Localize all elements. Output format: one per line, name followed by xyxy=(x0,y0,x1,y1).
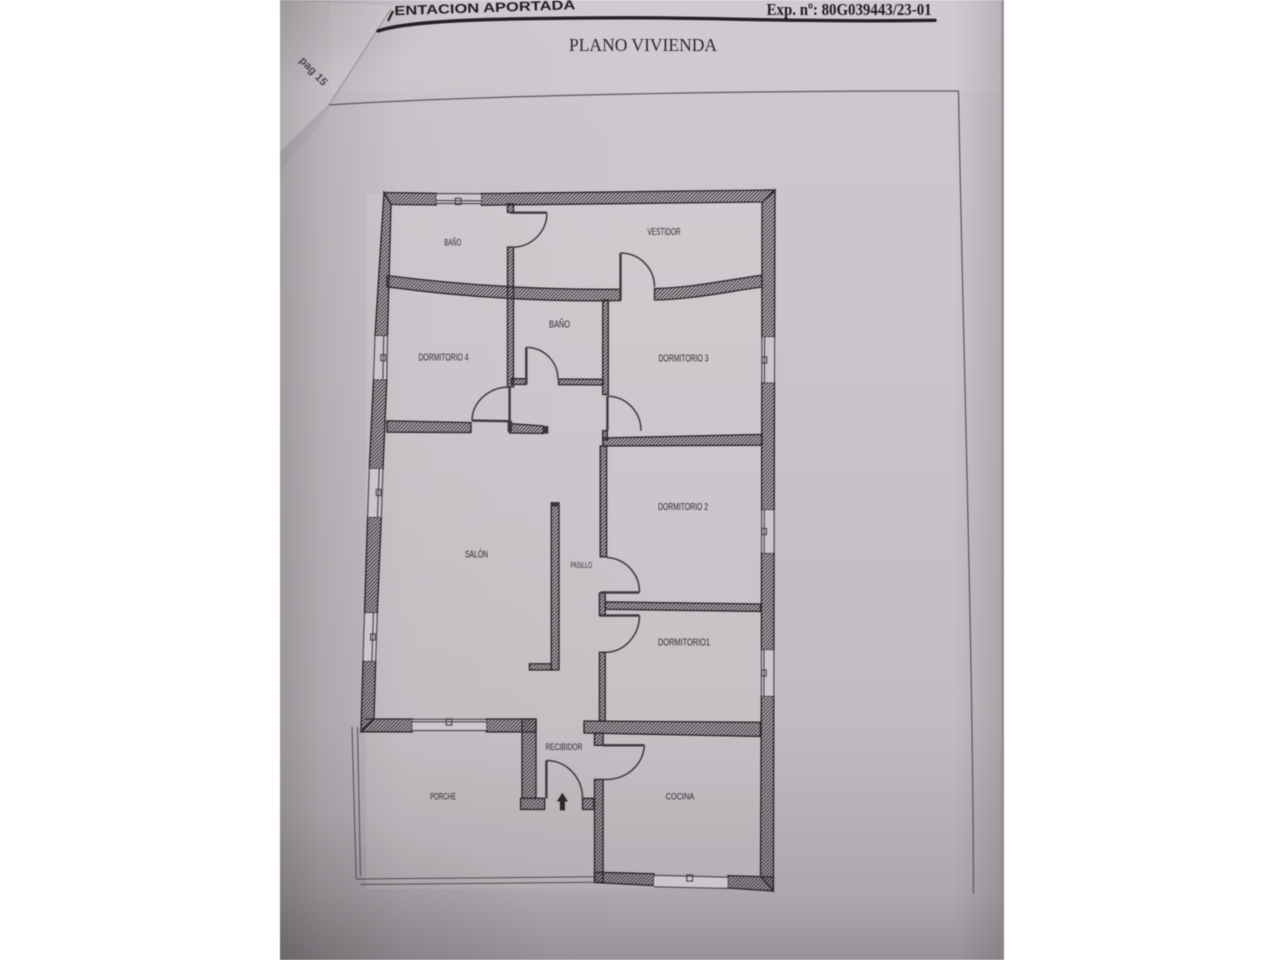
svg-text:BAÑO: BAÑO xyxy=(549,318,570,331)
svg-text:PORCHE: PORCHE xyxy=(430,792,456,803)
svg-text:DORMITORIO 4: DORMITORIO 4 xyxy=(419,353,469,364)
svg-text:COCINA: COCINA xyxy=(666,792,695,803)
svg-text:PASILLO: PASILLO xyxy=(571,560,593,570)
svg-text:VESTIDOR: VESTIDOR xyxy=(648,227,681,238)
svg-text:DORMITORIO 3: DORMITORIO 3 xyxy=(659,354,709,365)
svg-text:DORMITORIO 2: DORMITORIO 2 xyxy=(658,502,708,513)
svg-text:Exp. nº: 80G039443/23-01: Exp. nº: 80G039443/23-01 xyxy=(767,0,932,19)
svg-text:RECIBIDOR: RECIBIDOR xyxy=(546,742,583,753)
svg-text:PLANO VIVIENDA: PLANO VIVIENDA xyxy=(569,35,717,55)
svg-text:BAÑO: BAÑO xyxy=(444,238,461,249)
svg-text:DORMITORIO1: DORMITORIO1 xyxy=(658,638,710,649)
svg-text:SALÓN: SALÓN xyxy=(465,548,488,561)
